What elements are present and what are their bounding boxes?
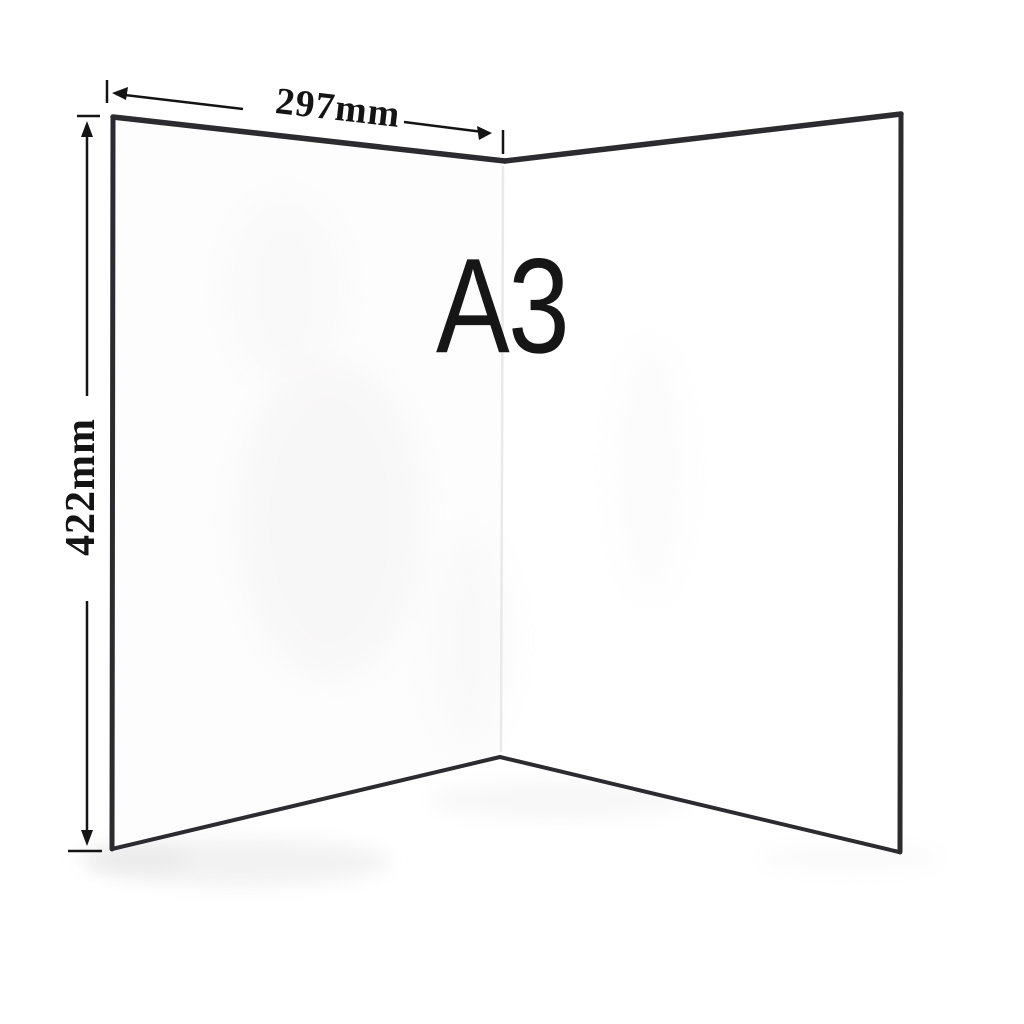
width-dimension-line-right: [404, 122, 483, 132]
board-edge-left: [112, 117, 113, 849]
width-dimension-line-left: [116, 94, 243, 109]
paper-size-label: A3: [436, 228, 568, 383]
arrowhead-right-icon: [477, 126, 492, 140]
arrowhead-left-icon: [112, 87, 128, 100]
folding-board-illustration: [0, 0, 1024, 1024]
arrowhead-up-icon: [81, 121, 93, 137]
arrowhead-down-icon: [81, 830, 93, 846]
board-edge-right: [900, 114, 901, 852]
board-right-panel: [500, 113, 902, 853]
height-dimension-label: 422mm: [57, 418, 105, 556]
product-dimension-diagram: 297mm 422mm A3: [0, 0, 1024, 1024]
